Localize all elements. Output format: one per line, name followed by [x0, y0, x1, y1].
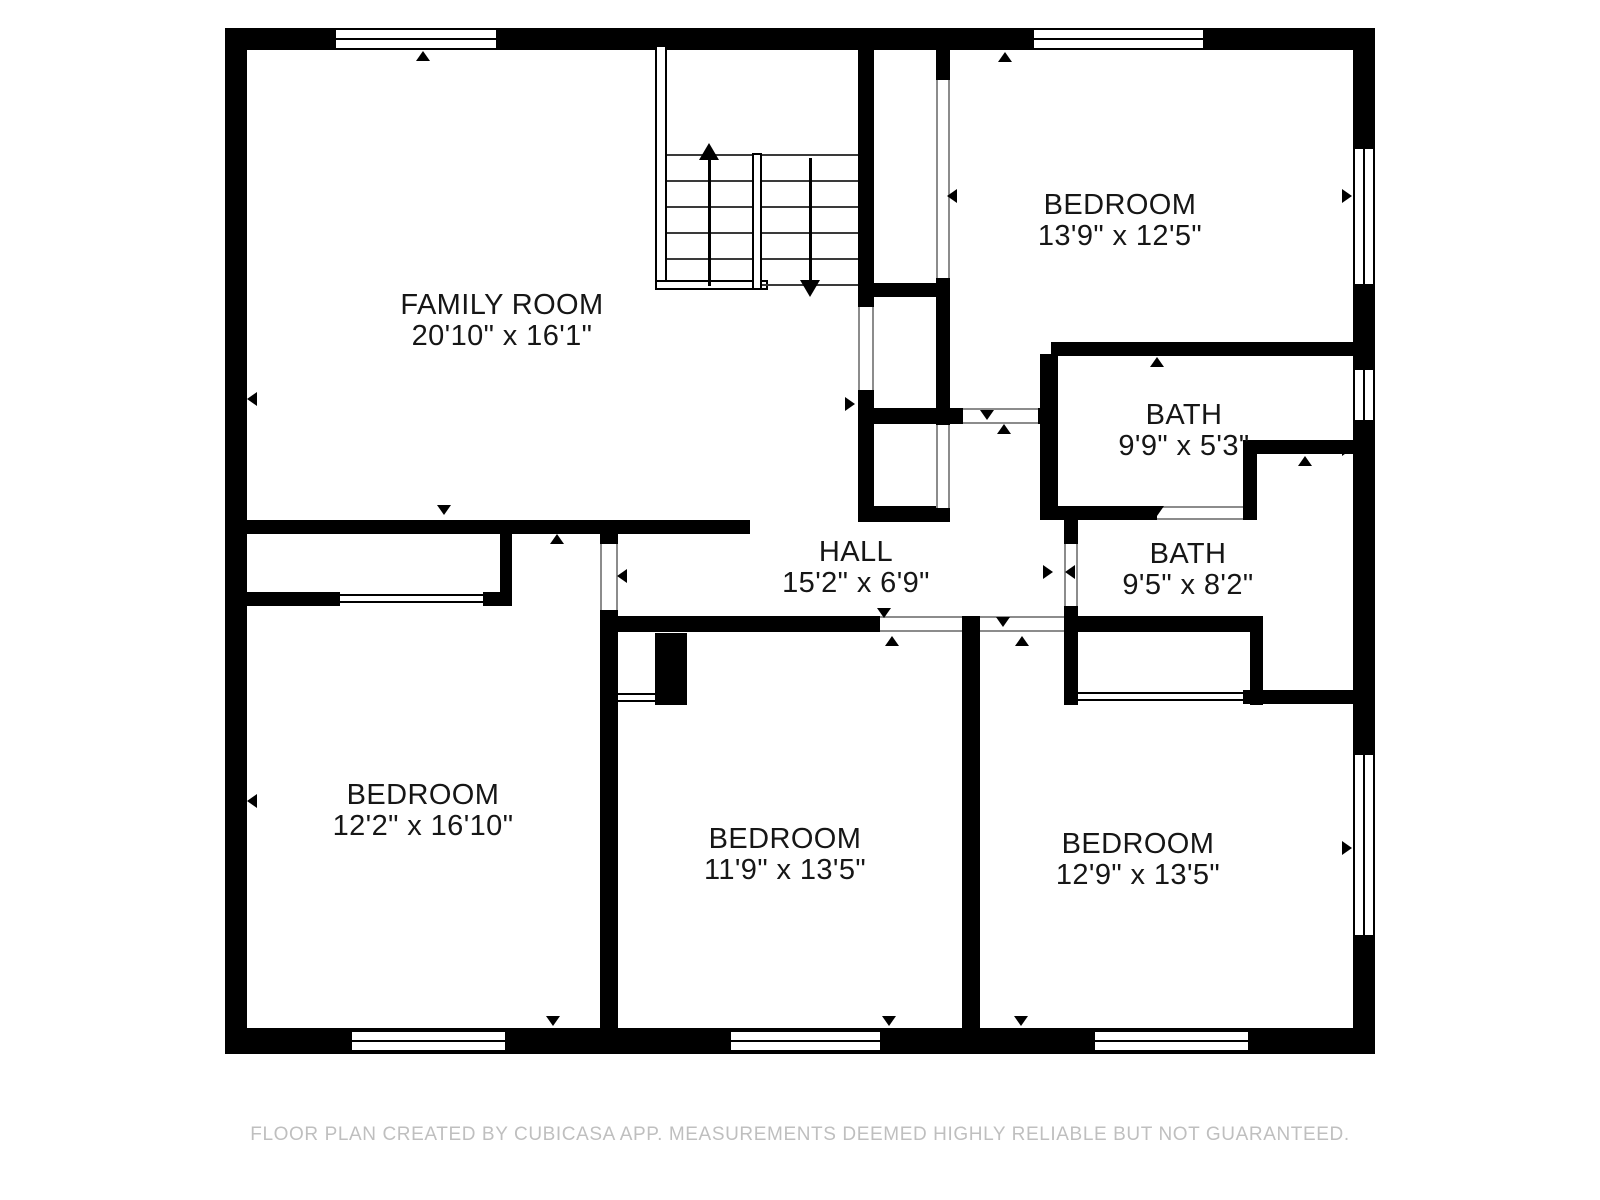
wall-marker-icon: [947, 189, 957, 203]
room-dimensions: 9'5" x 8'2": [1122, 570, 1253, 601]
wall-marker-icon: [885, 636, 899, 646]
window: [729, 1030, 882, 1052]
window: [350, 1030, 507, 1052]
wall-marker-icon: [1150, 357, 1164, 367]
wall: [240, 520, 750, 534]
wall-marker-icon: [1150, 506, 1164, 516]
wall-marker-icon: [1014, 1016, 1028, 1026]
wall: [600, 610, 618, 1028]
door-opening: [600, 544, 618, 610]
window: [1353, 753, 1375, 937]
wall-marker-icon: [1065, 565, 1075, 579]
wall-marker-icon: [1043, 565, 1053, 579]
door-opening: [980, 616, 1064, 632]
sliding-door: [1078, 692, 1243, 701]
stairs-down-arrow: [809, 158, 812, 282]
stair-wall: [655, 45, 667, 290]
room-dimensions: 12'2" x 16'10": [333, 811, 514, 842]
wall-marker-icon: [617, 569, 627, 583]
wall-marker-icon: [997, 424, 1011, 434]
floor-plan: FLOOR PLAN CREATED BY CUBICASA APP. MEAS…: [0, 0, 1600, 1200]
room-name: BEDROOM: [704, 824, 866, 855]
wall: [1064, 616, 1263, 632]
sliding-door: [340, 594, 483, 603]
room-name: BEDROOM: [1056, 829, 1220, 860]
window: [1032, 28, 1205, 50]
wall: [858, 408, 963, 424]
room-name: BEDROOM: [1038, 190, 1202, 221]
wall-marker-icon: [1298, 456, 1312, 466]
wall: [600, 520, 618, 544]
room-name: FAMILY ROOM: [400, 290, 603, 321]
room-dimensions: 9'9" x 5'3": [1118, 431, 1249, 462]
window: [1093, 1030, 1250, 1052]
wall: [1243, 690, 1353, 704]
room-label-family-room: FAMILY ROOM20'10" x 16'1": [400, 290, 603, 352]
room-dimensions: 15'2" x 6'9": [782, 568, 930, 599]
wall-marker-icon: [845, 397, 855, 411]
room-label-bedroom-bottom-left: BEDROOM12'2" x 16'10": [333, 780, 514, 842]
stairs-up-arrow: [708, 158, 711, 286]
stairs-up-arrowhead-icon: [699, 143, 719, 160]
window: [1353, 147, 1375, 286]
wall: [1243, 440, 1353, 454]
door-opening: [858, 307, 874, 390]
door-opening: [936, 80, 950, 278]
wall-marker-icon: [1342, 442, 1352, 456]
wall: [225, 28, 247, 1054]
room-name: BATH: [1118, 400, 1249, 431]
wall: [1064, 520, 1078, 544]
wall: [858, 28, 874, 307]
door-opening: [1157, 506, 1243, 520]
wall: [655, 633, 687, 705]
wall: [1053, 506, 1157, 520]
window: [1353, 368, 1375, 422]
wall-marker-icon: [1342, 189, 1352, 203]
wall-marker-icon: [247, 392, 257, 406]
wall: [1051, 342, 1353, 356]
room-label-bedroom-bottom-right: BEDROOM12'9" x 13'5": [1056, 829, 1220, 891]
room-dimensions: 11'9" x 13'5": [704, 855, 866, 886]
room-dimensions: 20'10" x 16'1": [400, 321, 603, 352]
wall-marker-icon: [546, 1016, 560, 1026]
wall: [483, 592, 512, 606]
wall-marker-icon: [1015, 636, 1029, 646]
door-opening: [963, 408, 1038, 424]
sliding-door: [618, 693, 655, 702]
room-label-bath-lower: BATH9'5" x 8'2": [1122, 539, 1253, 601]
footer-disclaimer: FLOOR PLAN CREATED BY CUBICASA APP. MEAS…: [0, 1124, 1600, 1146]
room-dimensions: 12'9" x 13'5": [1056, 860, 1220, 891]
room-name: BEDROOM: [333, 780, 514, 811]
wall-marker-icon: [416, 51, 430, 61]
wall: [1040, 354, 1058, 520]
stair-wall: [752, 153, 762, 290]
room-label-bedroom-bottom-middle: BEDROOM11'9" x 13'5": [704, 824, 866, 886]
room-label-bedroom-top-right: BEDROOM13'9" x 12'5": [1038, 190, 1202, 252]
room-name: HALL: [782, 537, 930, 568]
wall-marker-icon: [437, 505, 451, 515]
stairs-down-arrowhead-icon: [800, 280, 820, 297]
wall-marker-icon: [882, 1016, 896, 1026]
room-label-hall: HALL15'2" x 6'9": [782, 537, 930, 599]
wall-marker-icon: [877, 608, 891, 618]
wall: [618, 616, 880, 632]
room-dimensions: 13'9" x 12'5": [1038, 221, 1202, 252]
wall-marker-icon: [980, 410, 994, 420]
wall: [936, 278, 950, 425]
wall: [962, 616, 980, 1028]
wall: [247, 592, 340, 606]
door-opening: [936, 425, 950, 508]
wall-marker-icon: [1300, 690, 1314, 700]
wall-marker-icon: [996, 617, 1010, 627]
wall: [858, 506, 950, 522]
room-name: BATH: [1122, 539, 1253, 570]
wall-marker-icon: [247, 794, 257, 808]
wall: [936, 50, 950, 80]
stair-tread: [762, 154, 858, 156]
room-label-bath-upper: BATH9'9" x 5'3": [1118, 400, 1249, 462]
wall-marker-icon: [550, 534, 564, 544]
wall-marker-icon: [998, 52, 1012, 62]
wall-marker-icon: [1342, 841, 1352, 855]
window: [334, 28, 498, 50]
door-opening: [880, 616, 962, 632]
